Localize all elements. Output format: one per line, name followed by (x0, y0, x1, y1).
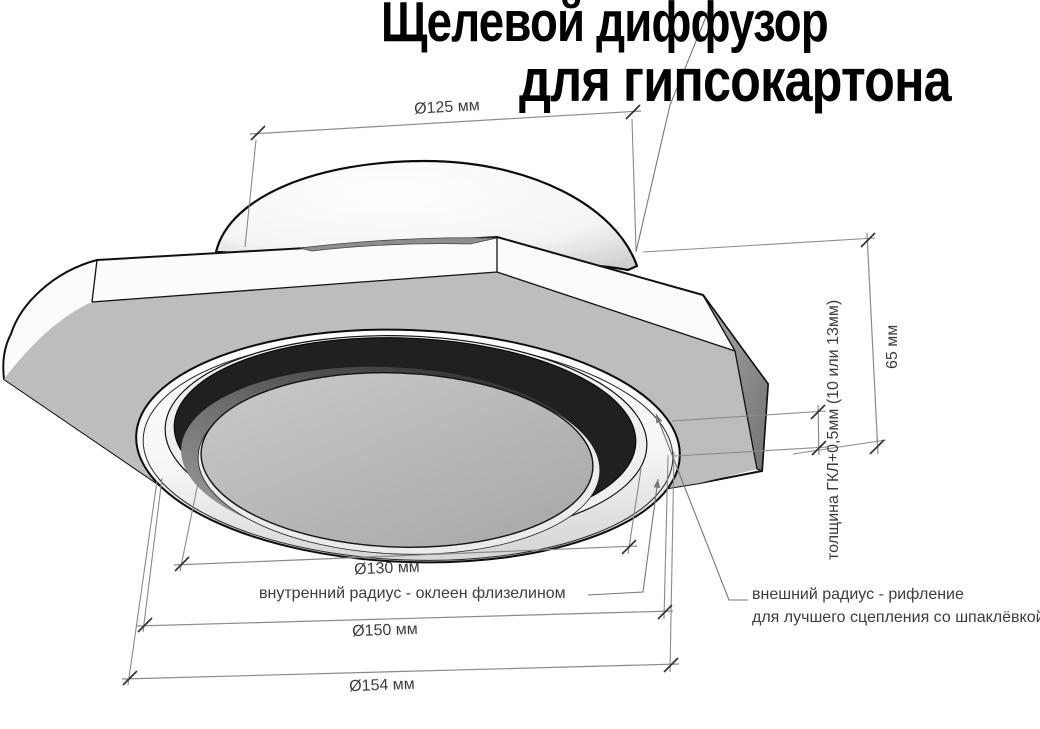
inner-radius-note: внутренний радиус - оклеен флизелином (259, 585, 566, 603)
title-line-2: для гипсокартона (519, 51, 951, 111)
dimension-board-thickness: толщина ГКЛ+0,5мм (10 или 13мм) (825, 300, 843, 560)
outer-radius-note: внешний радиус - рифление для лучшего сц… (752, 583, 1040, 629)
dimension-total-height: 65 мм (884, 325, 902, 369)
outer-radius-note-line1: внешний радиус - рифление (752, 583, 1040, 606)
title-line-1: Щелевой диффузор (381, 0, 828, 51)
outer-radius-note-line2: для лучшего сцепления со шпаклёвкой (752, 606, 1040, 629)
diffuser-technical-drawing: Щелевой диффузор для гипсокартона Ø125 м… (0, 0, 1040, 729)
